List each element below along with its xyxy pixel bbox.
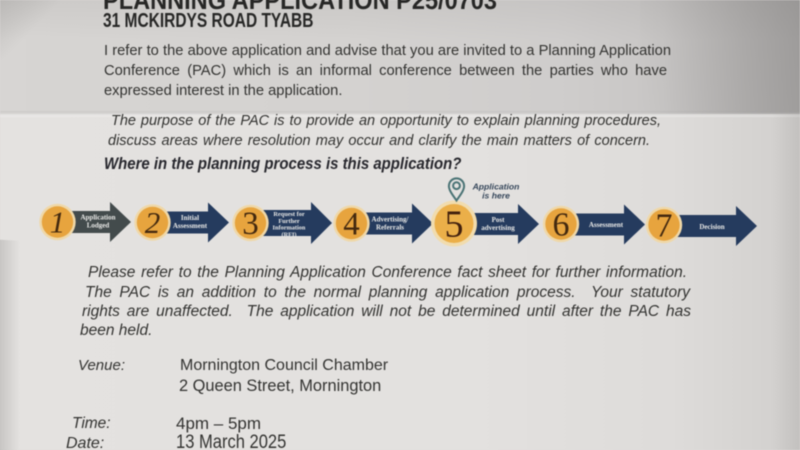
svg-text:2: 2 — [145, 205, 161, 240]
svg-text:Advertising/: Advertising/ — [372, 216, 410, 224]
svg-text:Initial: Initial — [181, 214, 199, 222]
svg-text:5: 5 — [445, 204, 464, 246]
svg-text:7: 7 — [656, 208, 673, 245]
svg-text:Referrals: Referrals — [376, 224, 404, 232]
svg-text:Assessment: Assessment — [173, 222, 208, 230]
svg-text:Application: Application — [80, 214, 115, 222]
svg-text:Assessment: Assessment — [589, 221, 624, 229]
svg-text:Decision: Decision — [699, 223, 724, 231]
svg-text:Lodged: Lodged — [87, 222, 110, 230]
svg-text:Post: Post — [492, 216, 506, 224]
svg-text:is here: is here — [482, 191, 510, 201]
svg-text:1: 1 — [50, 205, 66, 240]
svg-text:3: 3 — [242, 206, 259, 242]
svg-text:advertising: advertising — [481, 224, 515, 232]
svg-text:(RFI): (RFI) — [281, 231, 296, 238]
svg-text:4: 4 — [343, 207, 360, 243]
svg-text:6: 6 — [553, 207, 570, 244]
